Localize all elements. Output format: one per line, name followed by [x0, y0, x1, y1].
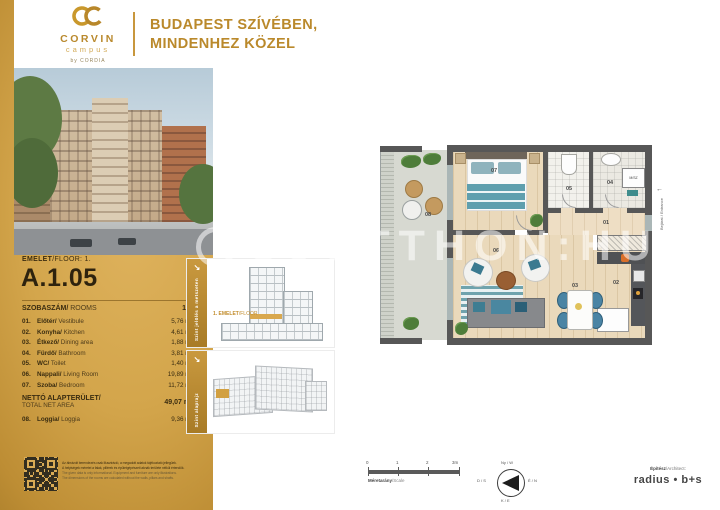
pillow: [498, 162, 521, 174]
wall-bedroom-bottom: [453, 230, 515, 235]
architect-logo: radius • b+s: [622, 474, 714, 486]
compass-icon: [497, 469, 525, 497]
architect-label: Építész/Architect:: [622, 466, 714, 471]
keyplan-unit-highlight: [216, 389, 229, 398]
headline-line1: BUDAPEST SZÍVÉBEN,: [150, 16, 350, 35]
section-caption: 1. EMELET/FLOOR: [213, 311, 257, 317]
total-net-area-row: NETTÓ ALAPTERÜLET/ TOTAL NET AREA 49,07 …: [22, 395, 194, 409]
room-number: 01.: [22, 317, 37, 328]
room-number: 08.: [22, 415, 37, 426]
nightstand: [529, 153, 540, 164]
qr-finder: [25, 458, 37, 470]
compass-label-south: D / S: [477, 478, 486, 483]
sofa-pillow: [515, 302, 527, 312]
nightstand: [455, 153, 466, 164]
corvin-campus-logo: CORVIN campus by CORDIA: [28, 5, 148, 64]
room-number: 07.: [22, 381, 37, 392]
wardrobe: [597, 235, 647, 251]
wall-bath-bottom: [575, 208, 603, 213]
room-number: 03.: [22, 338, 37, 349]
qr-finder: [25, 478, 37, 490]
entrance-door: [645, 215, 652, 231]
sofa-pillow: [473, 302, 485, 312]
wall-bottom: [447, 338, 652, 345]
scale-tick-2: 2: [426, 460, 429, 465]
table-row: 02. Konyha/ Kitchen 4,61 m2: [22, 328, 194, 339]
coffee-table: [496, 271, 516, 290]
bath-accessory: [627, 190, 638, 196]
arrow-icon: ↘: [187, 355, 207, 364]
render-building-tower: [92, 98, 128, 222]
entrance-label: Bejárat / Entrance: [659, 198, 664, 230]
kitchen-utensil: [621, 254, 629, 262]
table-row: 04. Fürdő/ Bathroom 3,81 m2: [22, 349, 194, 360]
rooms-header-label: SZOBASZÁM/ ROOMS: [22, 305, 97, 312]
disclaimer-en2: The dimensions of the rooms are calculat…: [62, 476, 212, 481]
section-thumbnail-strip: ↘ Szint jelölés a metszeten: [187, 259, 207, 347]
keyplan-thumbnail-strip: ↘ Szint alaprajz: [187, 351, 207, 433]
total-label: NETTÓ ALAPTERÜLET/ TOTAL NET AREA: [22, 395, 154, 409]
room-label-05: 05: [566, 186, 572, 192]
architect-block: Építész/Architect: radius • b+s: [622, 466, 714, 486]
room-label-08: 08: [425, 212, 431, 218]
room-name: Előtér/ Vestibule: [37, 317, 160, 328]
scale-bar: [368, 470, 460, 474]
room-name: Fürdő/ Bathroom: [37, 349, 160, 360]
scale-tick-mark: [368, 467, 369, 476]
section-strip-label: Szint jelölés a metszeten: [194, 278, 199, 341]
rooms-table: SZOBASZÁM/ ROOMS 1+1 01. Előtér/ Vestibu…: [22, 305, 194, 426]
unit-code: A.1.05: [21, 264, 98, 293]
wall: [380, 338, 422, 344]
room-label-01: 01: [603, 220, 609, 226]
floor-label: EMELET/FLOOR: 1.: [22, 256, 91, 263]
table-row: 01. Előtér/ Vestibule 5,76 m2: [22, 317, 194, 328]
washbasin: [601, 153, 621, 166]
window-living: [447, 258, 453, 320]
toilet: [561, 154, 577, 175]
room-label-06: 06: [493, 248, 499, 254]
floor-label-hu: EMELET: [22, 256, 52, 263]
scale-tick-mark: [428, 467, 429, 476]
render-car: [118, 238, 136, 245]
logo-byline: by CORDIA: [28, 58, 148, 64]
scale-label: Méretarány/Scale: [368, 478, 405, 483]
bed-blanket: [467, 184, 525, 209]
headline: BUDAPEST SZÍVÉBEN, MINDENHEZ KÖZEL: [150, 16, 350, 54]
render-street: [14, 229, 213, 255]
scale-tick-mark: [459, 467, 460, 476]
compass-label-north: É / N: [528, 478, 537, 483]
building-render-image: [14, 68, 213, 255]
table-decor: [575, 303, 582, 310]
loggia-row: 08. Loggia/ Loggia 9,36 m2: [22, 415, 194, 426]
render-car: [70, 239, 92, 247]
keyplan-wing-c: [305, 381, 327, 411]
stove-burner: [636, 291, 640, 295]
loggia-deck-edge: [380, 150, 394, 340]
wall-bath-bottom2: [627, 208, 652, 213]
arrow-icon: ↘: [187, 263, 207, 272]
divider: [22, 300, 192, 301]
room-label-07: 07: [491, 168, 497, 174]
wall-bedroom-right: [543, 145, 548, 233]
section-thumbnail: ↘ Szint jelölés a metszeten 1. EMELET/FL…: [186, 258, 335, 348]
scale-tick-0: 0: [366, 460, 369, 465]
wall-wc-bath: [589, 145, 593, 208]
room-label-04: 04: [607, 180, 613, 186]
room-label-03: 03: [572, 283, 578, 289]
wall: [380, 146, 422, 152]
room-name: Étkező/ Dining area: [37, 338, 160, 349]
washing-machine: M/SZ: [622, 168, 645, 188]
room-name: Nappali/ Living Room: [37, 370, 160, 381]
compass-needle: [502, 475, 519, 491]
loggia-table: [402, 200, 422, 220]
wall-top: [447, 145, 652, 152]
rooms-table-header: SZOBASZÁM/ ROOMS 1+1: [22, 305, 194, 312]
room-name: WC/ Toilet: [37, 359, 160, 370]
keyplan-thumbnail: ↘ Szint alaprajz: [186, 350, 335, 434]
bed-headboard: [465, 152, 527, 159]
qr-finder: [45, 458, 57, 470]
entrance-arrow-icon: ←: [656, 186, 663, 193]
headline-line2: MINDENHEZ KÖZEL: [150, 35, 350, 54]
room-name: Szoba/ Bedroom: [37, 381, 160, 392]
room-name: Konyha/ Kitchen: [37, 328, 160, 339]
room-number: 04.: [22, 349, 37, 360]
floor-label-en: /FLOOR: 1.: [52, 256, 91, 263]
section-base: [221, 323, 323, 341]
kitchen-sink: [633, 270, 645, 282]
room-number: 06.: [22, 370, 37, 381]
dining-table: [567, 290, 593, 330]
logo-subname: campus: [28, 45, 148, 54]
logo-name: CORVIN: [28, 33, 148, 45]
qr-code: [24, 457, 58, 491]
keyplan-strip-label: Szint alaprajz: [194, 393, 199, 427]
floor-plan: M/SZ 07 08 05 04 01 02 03 06 ← Bejárat /…: [375, 140, 667, 350]
compass-label-east: K / E: [501, 498, 510, 503]
room-number: 02.: [22, 328, 37, 339]
brochure-page: CORVIN campus by CORDIA BUDAPEST SZÍVÉBE…: [0, 0, 720, 510]
scale-tick-3: 3m: [452, 460, 458, 465]
scale-tick-mark: [398, 467, 399, 476]
cc-monogram-icon: [69, 5, 107, 27]
compass-label-west: Ny / W: [501, 460, 513, 465]
table-row: 06. Nappali/ Living Room 19,89 m2: [22, 370, 194, 381]
room-label-02: 02: [613, 280, 619, 286]
table-row: 05. WC/ Toilet 1,40 m2: [22, 359, 194, 370]
wall-wc-bottom: [543, 208, 561, 213]
table-row: 03. Étkező/ Dining area 1,88 m2: [22, 338, 194, 349]
header-divider: [133, 12, 135, 56]
table-row: 07. Szoba/ Bedroom 11,72 m2: [22, 381, 194, 392]
room-name: Loggia/ Loggia: [37, 415, 160, 426]
scale-tick-1: 1: [396, 460, 399, 465]
window-bedroom: [447, 165, 453, 220]
loggia-chair: [405, 180, 423, 198]
sofa-throw: [491, 300, 511, 314]
disclaimer: Az ábrázolt berendezés csak illusztráció…: [62, 461, 212, 481]
room-number: 05.: [22, 359, 37, 370]
